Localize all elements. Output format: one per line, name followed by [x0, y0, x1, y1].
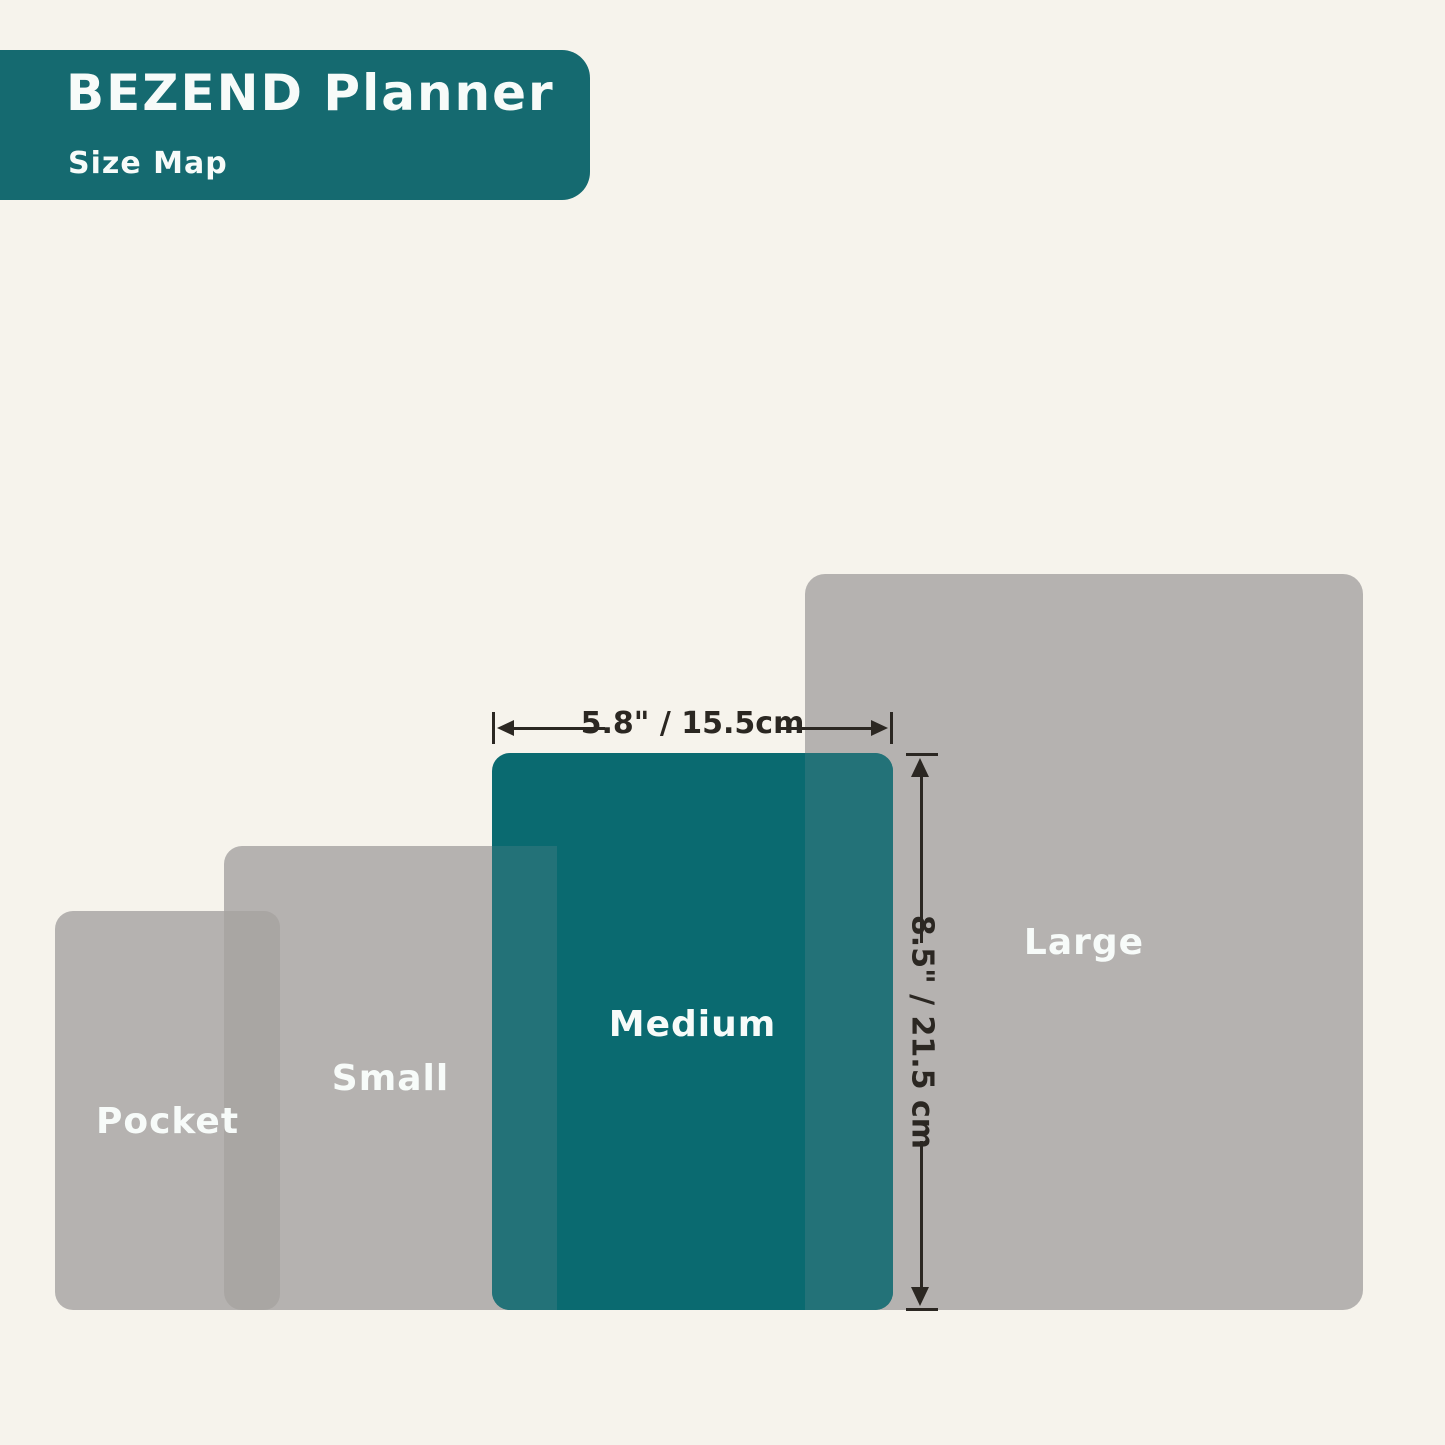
- dimension-line-bottom: [920, 1141, 923, 1289]
- size-label-small: Small: [332, 1058, 449, 1099]
- size-card-medium: Medium: [492, 753, 893, 1310]
- arrowhead-down-icon: [911, 1287, 929, 1306]
- page-subtitle: Size Map: [68, 146, 228, 181]
- dimension-tick-right: [890, 712, 893, 744]
- overlap-medium-large: [805, 753, 893, 1310]
- header-badge: BEZEND Planner Size Map: [0, 50, 590, 200]
- arrowhead-right-icon: [871, 720, 888, 736]
- dimension-tick-top: [906, 753, 938, 756]
- brand-title: BEZEND Planner: [66, 64, 555, 122]
- size-label-medium: Medium: [609, 1004, 777, 1059]
- size-label-pocket: Pocket: [96, 1079, 239, 1142]
- dimension-line-right: [780, 727, 872, 730]
- size-label-large: Large: [1024, 922, 1144, 963]
- height-dimension-label: 8.5" / 21.5 cm: [905, 915, 940, 1149]
- width-dimension-annotation: 5.8" / 15.5cm: [492, 710, 893, 750]
- width-dimension-label: 5.8" / 15.5cm: [492, 704, 893, 744]
- height-dimension-annotation: 8.5" / 21.5 cm: [905, 753, 939, 1311]
- overlap-small-medium: [492, 846, 557, 1310]
- dimension-tick-bottom: [906, 1308, 938, 1311]
